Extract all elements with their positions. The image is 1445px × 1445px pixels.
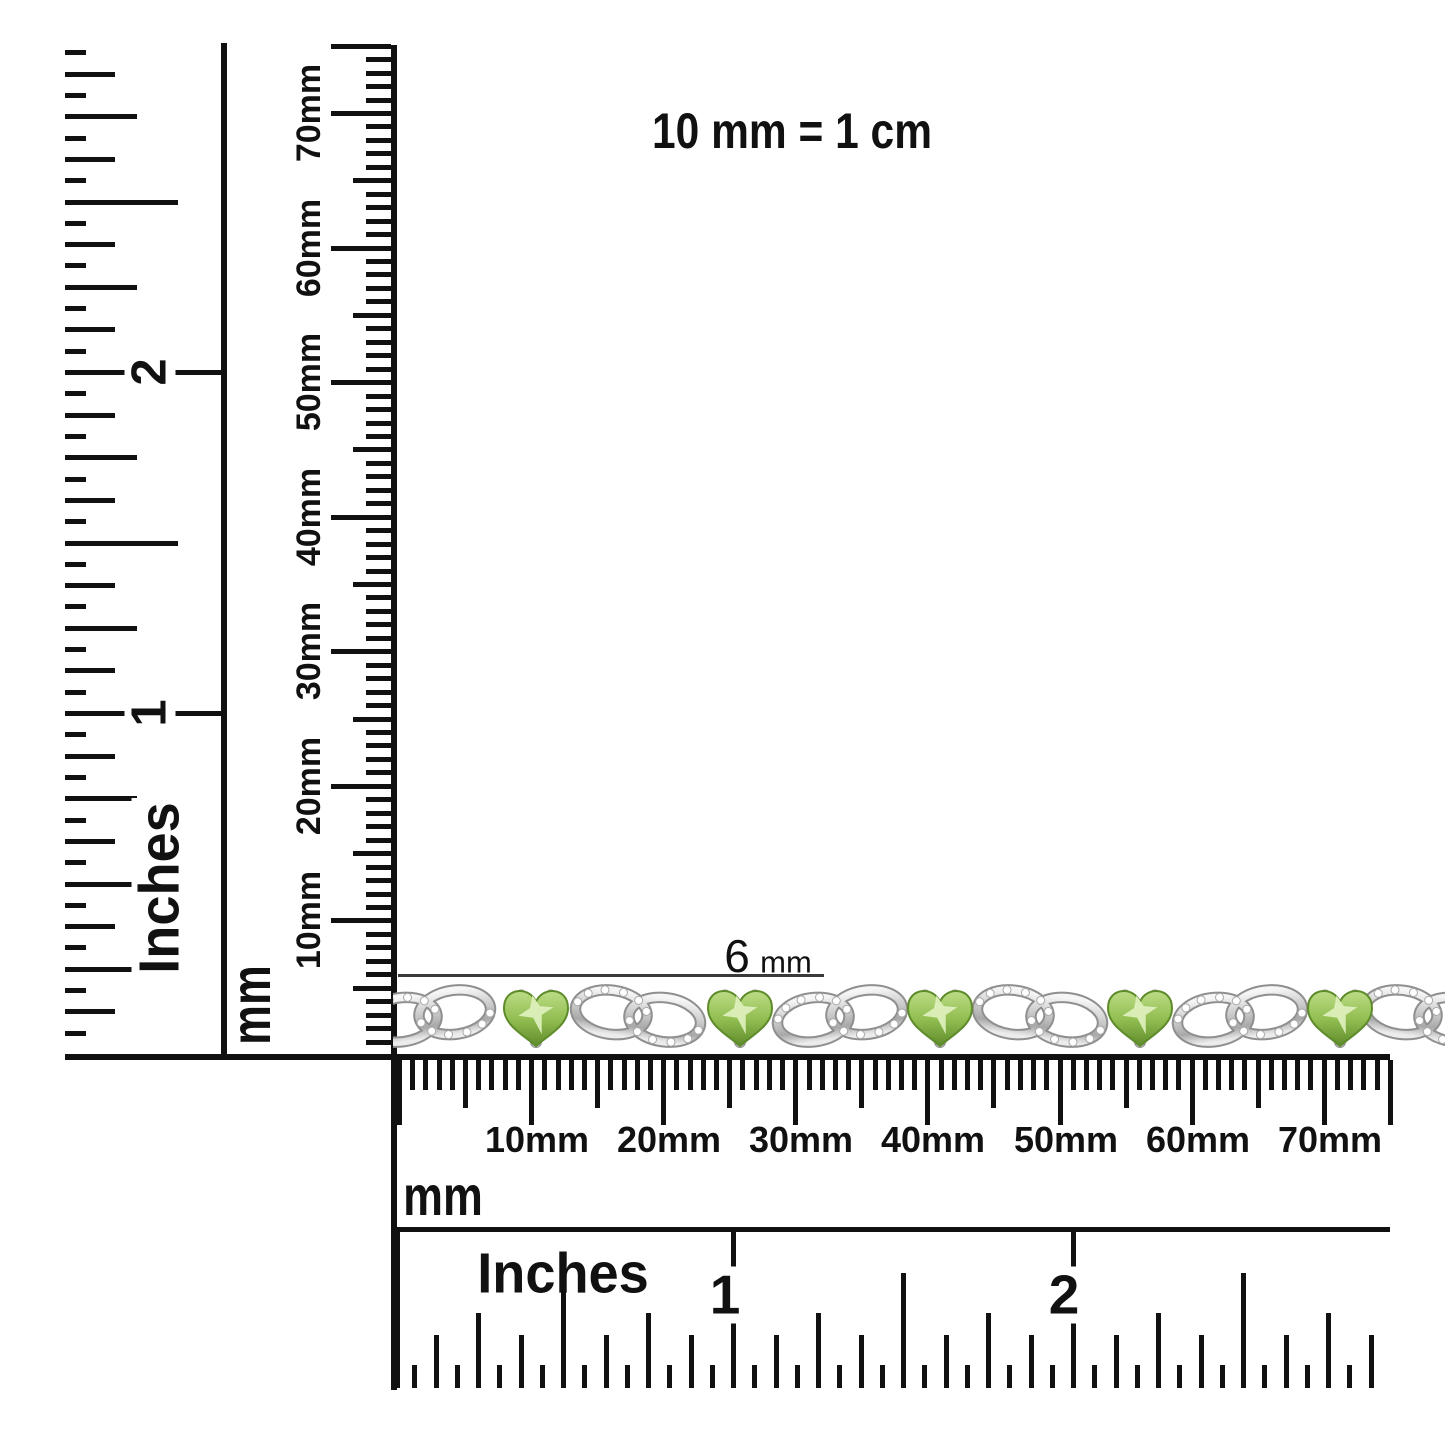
horizontal-mm-tick	[1124, 1060, 1129, 1108]
vertical-mm-tick	[366, 703, 391, 708]
vertical-mm-tick	[366, 770, 391, 775]
vertical-mm-tick	[366, 299, 391, 304]
bottom-inch-tick	[1347, 1365, 1352, 1388]
horizontal-mm-tick	[859, 1060, 864, 1108]
left-inch-tick	[65, 285, 137, 290]
bottom-inch-tick	[922, 1365, 927, 1388]
mm-tick-label: 40mm	[292, 468, 326, 566]
horizontal-mm-tick	[873, 1060, 878, 1090]
horizontal-mm-tick	[476, 1060, 481, 1090]
bottom-inch-tick	[859, 1335, 864, 1388]
vertical-mm-tick	[366, 905, 391, 910]
bottom-inch-tick	[901, 1273, 906, 1388]
diamond-accent	[403, 993, 412, 1002]
horizontal-mm-tick	[688, 1060, 693, 1090]
vertical-mm-tick	[366, 811, 391, 816]
diamond-accent	[1424, 996, 1433, 1005]
horizontal-mm-tick	[608, 1060, 613, 1090]
diamond-accent	[1174, 1014, 1183, 1023]
bottom-inch-tick	[774, 1335, 779, 1388]
vertical-mm-tick	[331, 649, 391, 654]
diamond-accent	[890, 1020, 899, 1029]
diamond-accent	[829, 1018, 838, 1027]
bottom-inch-tick	[1305, 1365, 1310, 1388]
vertical-mm-tick	[366, 138, 391, 143]
vertical-mm-tick	[353, 447, 391, 452]
bottom-inch-tick	[1114, 1335, 1119, 1388]
vertical-mm-tick	[331, 246, 391, 251]
left-inch-tick	[65, 924, 115, 929]
horizontal-mm-tick	[793, 1060, 798, 1125]
horizontal-mm-tick	[1361, 1060, 1366, 1090]
bottom-inch-tick	[519, 1335, 524, 1388]
vertical-mm-tick	[366, 165, 391, 170]
bottom-inch-tick	[1156, 1313, 1161, 1388]
horizontal-mm-tick	[635, 1060, 640, 1090]
horizontal-mm-tick	[820, 1060, 825, 1090]
vertical-mm-tick	[366, 367, 391, 372]
bottom-inch-tick	[689, 1335, 694, 1388]
mm-tick-label: 20mm	[617, 1122, 721, 1158]
left-inch-tick	[65, 434, 86, 439]
left-inch-tick	[65, 349, 86, 354]
vertical-mm-tick	[366, 219, 391, 224]
infinity-link	[1359, 982, 1445, 1050]
diamond-accent	[1002, 985, 1011, 994]
bottom-inch-tick	[944, 1335, 949, 1388]
left-inch-tick	[65, 583, 115, 588]
bottom-inch-tick	[1326, 1313, 1331, 1388]
diamond-accent	[648, 1035, 657, 1044]
vertical-mm-tick	[331, 380, 391, 385]
horizontal-mm-tick	[1388, 1060, 1393, 1125]
horizontal-mm-tick	[952, 1060, 957, 1090]
vertical-mm-tick	[366, 501, 391, 506]
diamond-accent	[1068, 1038, 1077, 1047]
horizontal-mm-tick	[437, 1060, 442, 1090]
vertical-mm-tick	[366, 1040, 391, 1045]
vertical-mm-tick	[366, 340, 391, 345]
horizontal-mm-tick	[767, 1060, 772, 1090]
horizontal-mm-tick	[846, 1060, 851, 1090]
vertical-mm-tick	[366, 421, 391, 426]
peridot-heart	[708, 990, 772, 1048]
horizontal-mm-tick	[1071, 1060, 1076, 1090]
diamond-accent	[1374, 989, 1383, 998]
vertical-mm-tick	[366, 461, 391, 466]
diamond-accent	[584, 989, 593, 998]
vertical-mm-tick	[366, 326, 391, 331]
horizontal-mm-tick	[1176, 1060, 1181, 1090]
bottom-inch-tick	[412, 1365, 417, 1388]
inch-label: 2	[1044, 1267, 1085, 1324]
horizontal-mm-tick	[886, 1060, 891, 1090]
horizontal-mm-tick	[1163, 1060, 1168, 1090]
horizontal-mm-tick	[899, 1060, 904, 1090]
bottom-inch-tick	[1177, 1365, 1182, 1388]
horizontal-mm-tick	[463, 1060, 468, 1108]
diamond-accent	[1239, 1027, 1248, 1036]
diamond-accent	[600, 985, 609, 994]
vertical-mm-tick	[366, 488, 391, 493]
left-inch-tick	[65, 541, 178, 546]
vertical-mm-tick	[366, 353, 391, 358]
diamond-accent	[1181, 1003, 1190, 1012]
diamond-accent	[1085, 1034, 1094, 1043]
mm-tick-label: 20mm	[292, 737, 326, 835]
mm-tick-label: 50mm	[1014, 1122, 1118, 1158]
bottom-inch-tick	[497, 1365, 502, 1388]
diamond-accent	[1044, 1007, 1053, 1016]
bottom-inch-tick	[582, 1365, 587, 1388]
diamond-accent	[666, 1038, 675, 1047]
horizontal-mm-tick	[1216, 1060, 1221, 1090]
diamond-accent	[417, 1018, 426, 1027]
diamond-accent	[420, 996, 429, 1005]
vertical-mm-tick	[366, 474, 391, 479]
bottom-inch-tick	[1050, 1365, 1055, 1388]
horizontal-mm-tick	[622, 1060, 627, 1090]
left-inch-tick	[65, 498, 115, 503]
diamond-accent	[1096, 1026, 1105, 1035]
vertical-mm-tick	[366, 528, 391, 533]
horizontal-mm-tick	[727, 1060, 732, 1108]
left-inch-tick	[65, 136, 86, 141]
diamond-accent	[1290, 1020, 1299, 1029]
diamond-accent	[897, 1009, 906, 1018]
vertical-mm-tick	[353, 313, 391, 318]
vertical-mm-tick	[366, 730, 391, 735]
left-inch-tick	[65, 477, 86, 482]
bottom-inch-tick	[1092, 1365, 1097, 1388]
vertical-mm-tick	[353, 178, 391, 183]
diamond-accent	[1050, 1035, 1059, 1044]
bracelet-image	[393, 970, 1445, 1062]
bottom-inch-tick	[1007, 1365, 1012, 1388]
horizontal-mm-tick	[1190, 1060, 1195, 1125]
vertical-mm-tick	[366, 259, 391, 264]
horizontal-mm-tick	[1308, 1060, 1313, 1090]
bottom-inch-tick	[986, 1313, 991, 1388]
horizontal-mm-tick	[397, 1060, 402, 1125]
left-inch-tick	[65, 391, 86, 396]
diamond-accent	[1297, 1009, 1306, 1018]
horizontal-mm-tick	[648, 1060, 653, 1090]
horizontal-mm-tick	[939, 1060, 944, 1090]
vertical-mm-tick	[366, 972, 391, 977]
left-inch-tick	[65, 178, 86, 183]
horizontal-mm-tick	[661, 1060, 666, 1125]
horizontal-mm-tick	[740, 1060, 745, 1090]
horizontal-mm-tick	[1348, 1060, 1353, 1090]
horizontal-mm-tick	[1256, 1060, 1261, 1108]
bottom-inch-tick	[604, 1335, 609, 1388]
infinity-link	[971, 982, 1108, 1050]
left-inch-tick	[65, 455, 137, 460]
left-inch-tick	[65, 1031, 86, 1036]
horizontal-mm-tick	[1150, 1060, 1155, 1090]
vertical-mm-tick	[366, 878, 391, 883]
inch-label: 1	[125, 694, 176, 731]
vertical-mm-tick	[366, 394, 391, 399]
bottom-inch-tick	[880, 1365, 885, 1388]
horizontal-mm-tick	[1335, 1060, 1340, 1090]
diamond-accent	[1035, 1027, 1044, 1036]
bottom-inch-tick	[816, 1313, 821, 1388]
vertical-mm-tick	[353, 851, 391, 856]
mm-tick-label: 40mm	[881, 1122, 985, 1158]
horizontal-mm-tick	[925, 1060, 930, 1125]
horizontal-mm-tick	[1242, 1060, 1247, 1090]
left-inch-tick	[65, 157, 115, 162]
left-inch-tick	[65, 796, 137, 801]
vertical-mm-tick	[366, 124, 391, 129]
mm-tick-label: 10mm	[485, 1122, 589, 1158]
bottom-inch-tick	[434, 1335, 439, 1388]
infinity-link	[771, 982, 908, 1050]
left-inch-tick	[65, 903, 86, 908]
diamond-accent	[774, 1014, 783, 1023]
mm-tick-label: 60mm	[292, 199, 326, 297]
horizontal-mm-tick	[1295, 1060, 1300, 1090]
horizontal-mm-tick	[1031, 1060, 1036, 1090]
diamond-accent	[832, 996, 841, 1005]
horizontal-mm-tick	[582, 1060, 587, 1090]
left-inch-tick	[65, 306, 86, 311]
bottom-inch-tick	[646, 1313, 651, 1388]
diamond-accent	[573, 997, 582, 1006]
left-inch-tick	[65, 967, 137, 972]
left-inch-tick	[65, 626, 137, 631]
left-inch-tick	[65, 839, 115, 844]
vertical-mm-tick	[366, 232, 391, 237]
diamond-accent	[1242, 1005, 1251, 1014]
vertical-mm-tick	[366, 151, 391, 156]
diamond-accent	[642, 1007, 651, 1016]
diamond-accent	[633, 1027, 642, 1036]
infinity-link	[1171, 982, 1308, 1050]
horizontal-mm-tick	[674, 1060, 679, 1090]
diamond-accent	[839, 1027, 848, 1036]
mm-tick-label: 60mm	[1146, 1122, 1250, 1158]
vertical-mm-tick	[366, 434, 391, 439]
bottom-inch-tick	[1135, 1365, 1140, 1388]
vertical-mm-tick	[366, 555, 391, 560]
diamond-accent	[874, 1027, 883, 1036]
bottom-inches-unit-label: Inches	[477, 1246, 649, 1303]
vertical-mm-tick	[366, 622, 391, 627]
horizontal-mm-tick	[807, 1060, 812, 1090]
left-inch-tick	[65, 1009, 115, 1014]
inch-label: 2	[125, 353, 176, 390]
left-inch-tick	[65, 327, 115, 332]
diamond-accent	[625, 1016, 634, 1025]
diamond-accent	[1229, 1018, 1238, 1027]
vertical-mm-tick	[366, 838, 391, 843]
vertical-mm-tick	[366, 676, 391, 681]
left-inch-tick	[65, 988, 86, 993]
scale-note: 10 mm = 1 cm	[652, 106, 932, 156]
vertical-mm-tick	[366, 1013, 391, 1018]
horizontal-mm-tick	[1084, 1060, 1089, 1090]
vertical-mm-tick	[353, 582, 391, 587]
horizontal-mm-tick	[516, 1060, 521, 1090]
vertical-mm-tick	[366, 542, 391, 547]
peridot-heart	[1108, 990, 1172, 1048]
left-inch-tick	[65, 200, 178, 205]
left-inch-tick	[65, 690, 86, 695]
diamond-accent	[1409, 988, 1418, 997]
peridot-heart	[504, 990, 568, 1048]
horizontal-mm-tick	[1282, 1060, 1287, 1090]
bottom-inch-tick	[1199, 1335, 1204, 1388]
peridot-heart	[1308, 990, 1372, 1048]
diamond-accent	[815, 993, 824, 1002]
diamond-accent	[1197, 995, 1206, 1004]
horizontal-mm-tick	[1229, 1060, 1234, 1090]
vertical-mm-tick	[366, 192, 391, 197]
vertical-mm-tick	[366, 205, 391, 210]
left-inch-tick	[65, 668, 115, 673]
diamond-accent	[1390, 985, 1399, 994]
vertical-mm-tick	[366, 690, 391, 695]
diamond-accent	[478, 1020, 487, 1029]
horizontal-mm-tick	[569, 1060, 574, 1090]
horizontal-mm-tick	[1110, 1060, 1115, 1090]
vertical-mm-tick	[353, 717, 391, 722]
vertical-mm-tick	[366, 824, 391, 829]
left-inch-tick	[65, 860, 86, 865]
left-inch-tick	[65, 754, 115, 759]
diamond-accent	[427, 1027, 436, 1036]
left-inch-tick	[65, 72, 115, 77]
left-inch-tick	[65, 93, 86, 98]
horizontal-mm-tick	[1058, 1060, 1063, 1125]
horizontal-mm-tick	[780, 1060, 785, 1090]
diamond-accent	[781, 1003, 790, 1012]
left-inches-ruler-edge	[221, 43, 227, 1060]
horizontal-mm-tick	[450, 1060, 455, 1090]
left-inch-tick	[65, 50, 86, 55]
diamond-accent	[1215, 993, 1224, 1002]
left-inch-tick	[65, 647, 86, 652]
horizontal-mm-tick	[965, 1060, 970, 1090]
vertical-mm-tick	[366, 636, 391, 641]
diamond-accent	[842, 1005, 851, 1014]
diamond-accent	[619, 988, 628, 997]
vertical-mm-tick	[366, 84, 391, 89]
vertical-mm-tick	[366, 932, 391, 937]
left-inch-tick	[65, 562, 86, 567]
horizontal-mm-tick	[1322, 1060, 1327, 1125]
horizontal-mm-unit-label: mm	[403, 1168, 483, 1224]
vertical-mm-tick	[366, 609, 391, 614]
bottom-inch-tick	[837, 1365, 842, 1388]
vertical-mm-tick	[366, 757, 391, 762]
vertical-mm-tick	[331, 44, 391, 49]
horizontal-mm-tick	[1137, 1060, 1142, 1090]
mm-tick-label: 70mm	[292, 64, 326, 162]
horizontal-mm-tick	[1005, 1060, 1010, 1090]
vertical-mm-tick	[331, 918, 391, 923]
diamond-accent	[634, 996, 643, 1005]
left-inch-tick	[65, 413, 115, 418]
mm-tick-label: 30mm	[749, 1122, 853, 1158]
bottom-inches-ruler-top-edge	[395, 1227, 1390, 1232]
vertical-mm-ruler-edge	[391, 45, 397, 1390]
diamond-accent	[1232, 996, 1241, 1005]
horizontal-mm-tick	[529, 1060, 534, 1125]
diamond-accent	[975, 997, 984, 1006]
horizontal-mm-tick	[423, 1060, 428, 1090]
mm-tick-label: 50mm	[292, 333, 326, 431]
horizontal-mm-tick	[595, 1060, 600, 1108]
vertical-mm-tick	[366, 663, 391, 668]
vertical-mm-tick	[366, 959, 391, 964]
product-measurement-image: 10 mm = 1 cm 6 mm Inches mm mm Inches 12…	[0, 0, 1445, 1445]
left-inch-tick	[65, 114, 137, 119]
vertical-mm-tick	[366, 98, 391, 103]
horizontal-mm-tick	[1018, 1060, 1023, 1090]
left-inches-unit-label: Inches	[132, 798, 189, 977]
vertical-mm-tick	[366, 595, 391, 600]
diamond-accent	[444, 1030, 453, 1039]
diamond-accent	[683, 1034, 692, 1043]
diamond-accent	[1423, 1027, 1432, 1036]
horizontal-mm-tick	[542, 1060, 547, 1090]
horizontal-mm-tick	[754, 1060, 759, 1090]
horizontal-mm-tick	[556, 1060, 561, 1090]
diamond-accent	[1027, 1016, 1036, 1025]
left-inch-tick	[65, 519, 86, 524]
left-inch-tick	[65, 775, 86, 780]
vertical-mm-tick	[366, 743, 391, 748]
diamond-accent	[986, 989, 995, 998]
mm-tick-label: 70mm	[1278, 1122, 1382, 1158]
horizontal-mm-tick	[1203, 1060, 1208, 1090]
vertical-mm-tick	[366, 286, 391, 291]
horizontal-mm-tick	[912, 1060, 917, 1090]
vertical-mm-tick	[366, 999, 391, 1004]
vertical-mm-tick	[366, 865, 391, 870]
vertical-mm-tick	[366, 569, 391, 574]
left-inch-tick	[65, 818, 86, 823]
vertical-mm-tick	[366, 57, 391, 62]
diamond-accent	[1415, 1016, 1424, 1025]
bottom-inches-ruler-left-edge	[395, 1227, 400, 1388]
infinity-link	[393, 982, 497, 1050]
diamond-accent	[1021, 988, 1030, 997]
horizontal-mm-tick	[1269, 1060, 1274, 1090]
diamond-accent	[1274, 1027, 1283, 1036]
left-inch-tick	[65, 945, 86, 950]
bottom-inch-tick	[965, 1365, 970, 1388]
bottom-inch-tick	[710, 1365, 715, 1388]
vertical-mm-tick	[366, 71, 391, 76]
vertical-mm-tick	[331, 515, 391, 520]
mm-tick-label: 30mm	[292, 602, 326, 700]
vertical-mm-tick	[366, 892, 391, 897]
vertical-mm-tick	[331, 111, 391, 116]
horizontal-mm-tick	[489, 1060, 494, 1090]
horizontal-mm-tick	[991, 1060, 996, 1108]
vertical-mm-tick	[366, 1026, 391, 1031]
diamond-accent	[1036, 996, 1045, 1005]
bottom-inch-tick	[625, 1365, 630, 1388]
diamond-accent	[694, 1026, 703, 1035]
bottom-inch-tick	[1369, 1335, 1374, 1388]
horizontal-mm-tick	[1044, 1060, 1049, 1090]
